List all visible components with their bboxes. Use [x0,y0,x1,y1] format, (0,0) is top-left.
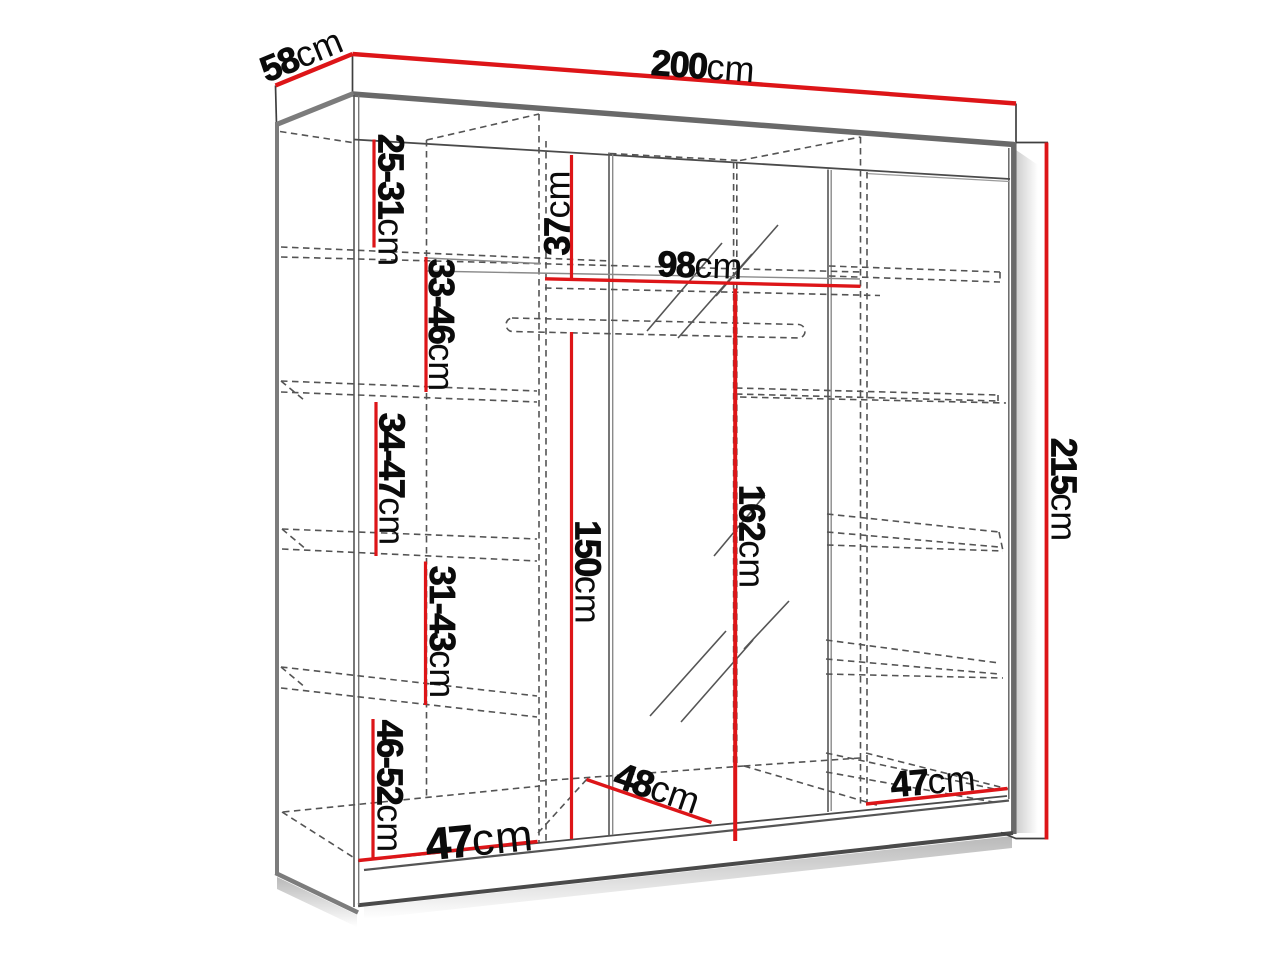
svg-text:98cm: 98cm [657,243,743,287]
svg-text:200cm: 200cm [650,42,756,91]
svg-text:34-47cm: 34-47cm [372,413,413,546]
svg-text:37cm: 37cm [537,170,578,255]
svg-text:215cm: 215cm [1044,438,1085,542]
svg-text:150cm: 150cm [568,520,609,624]
svg-text:33-46cm: 33-46cm [421,259,462,392]
svg-text:48cm: 48cm [609,755,705,822]
svg-text:31-43cm: 31-43cm [422,566,463,699]
svg-text:47cm: 47cm [423,809,535,870]
svg-text:47cm: 47cm [889,757,977,805]
svg-text:25-31cm: 25-31cm [371,134,412,267]
svg-text:58cm: 58cm [254,20,348,90]
svg-text:162cm: 162cm [732,485,773,589]
svg-text:46-52cm: 46-52cm [370,720,411,853]
